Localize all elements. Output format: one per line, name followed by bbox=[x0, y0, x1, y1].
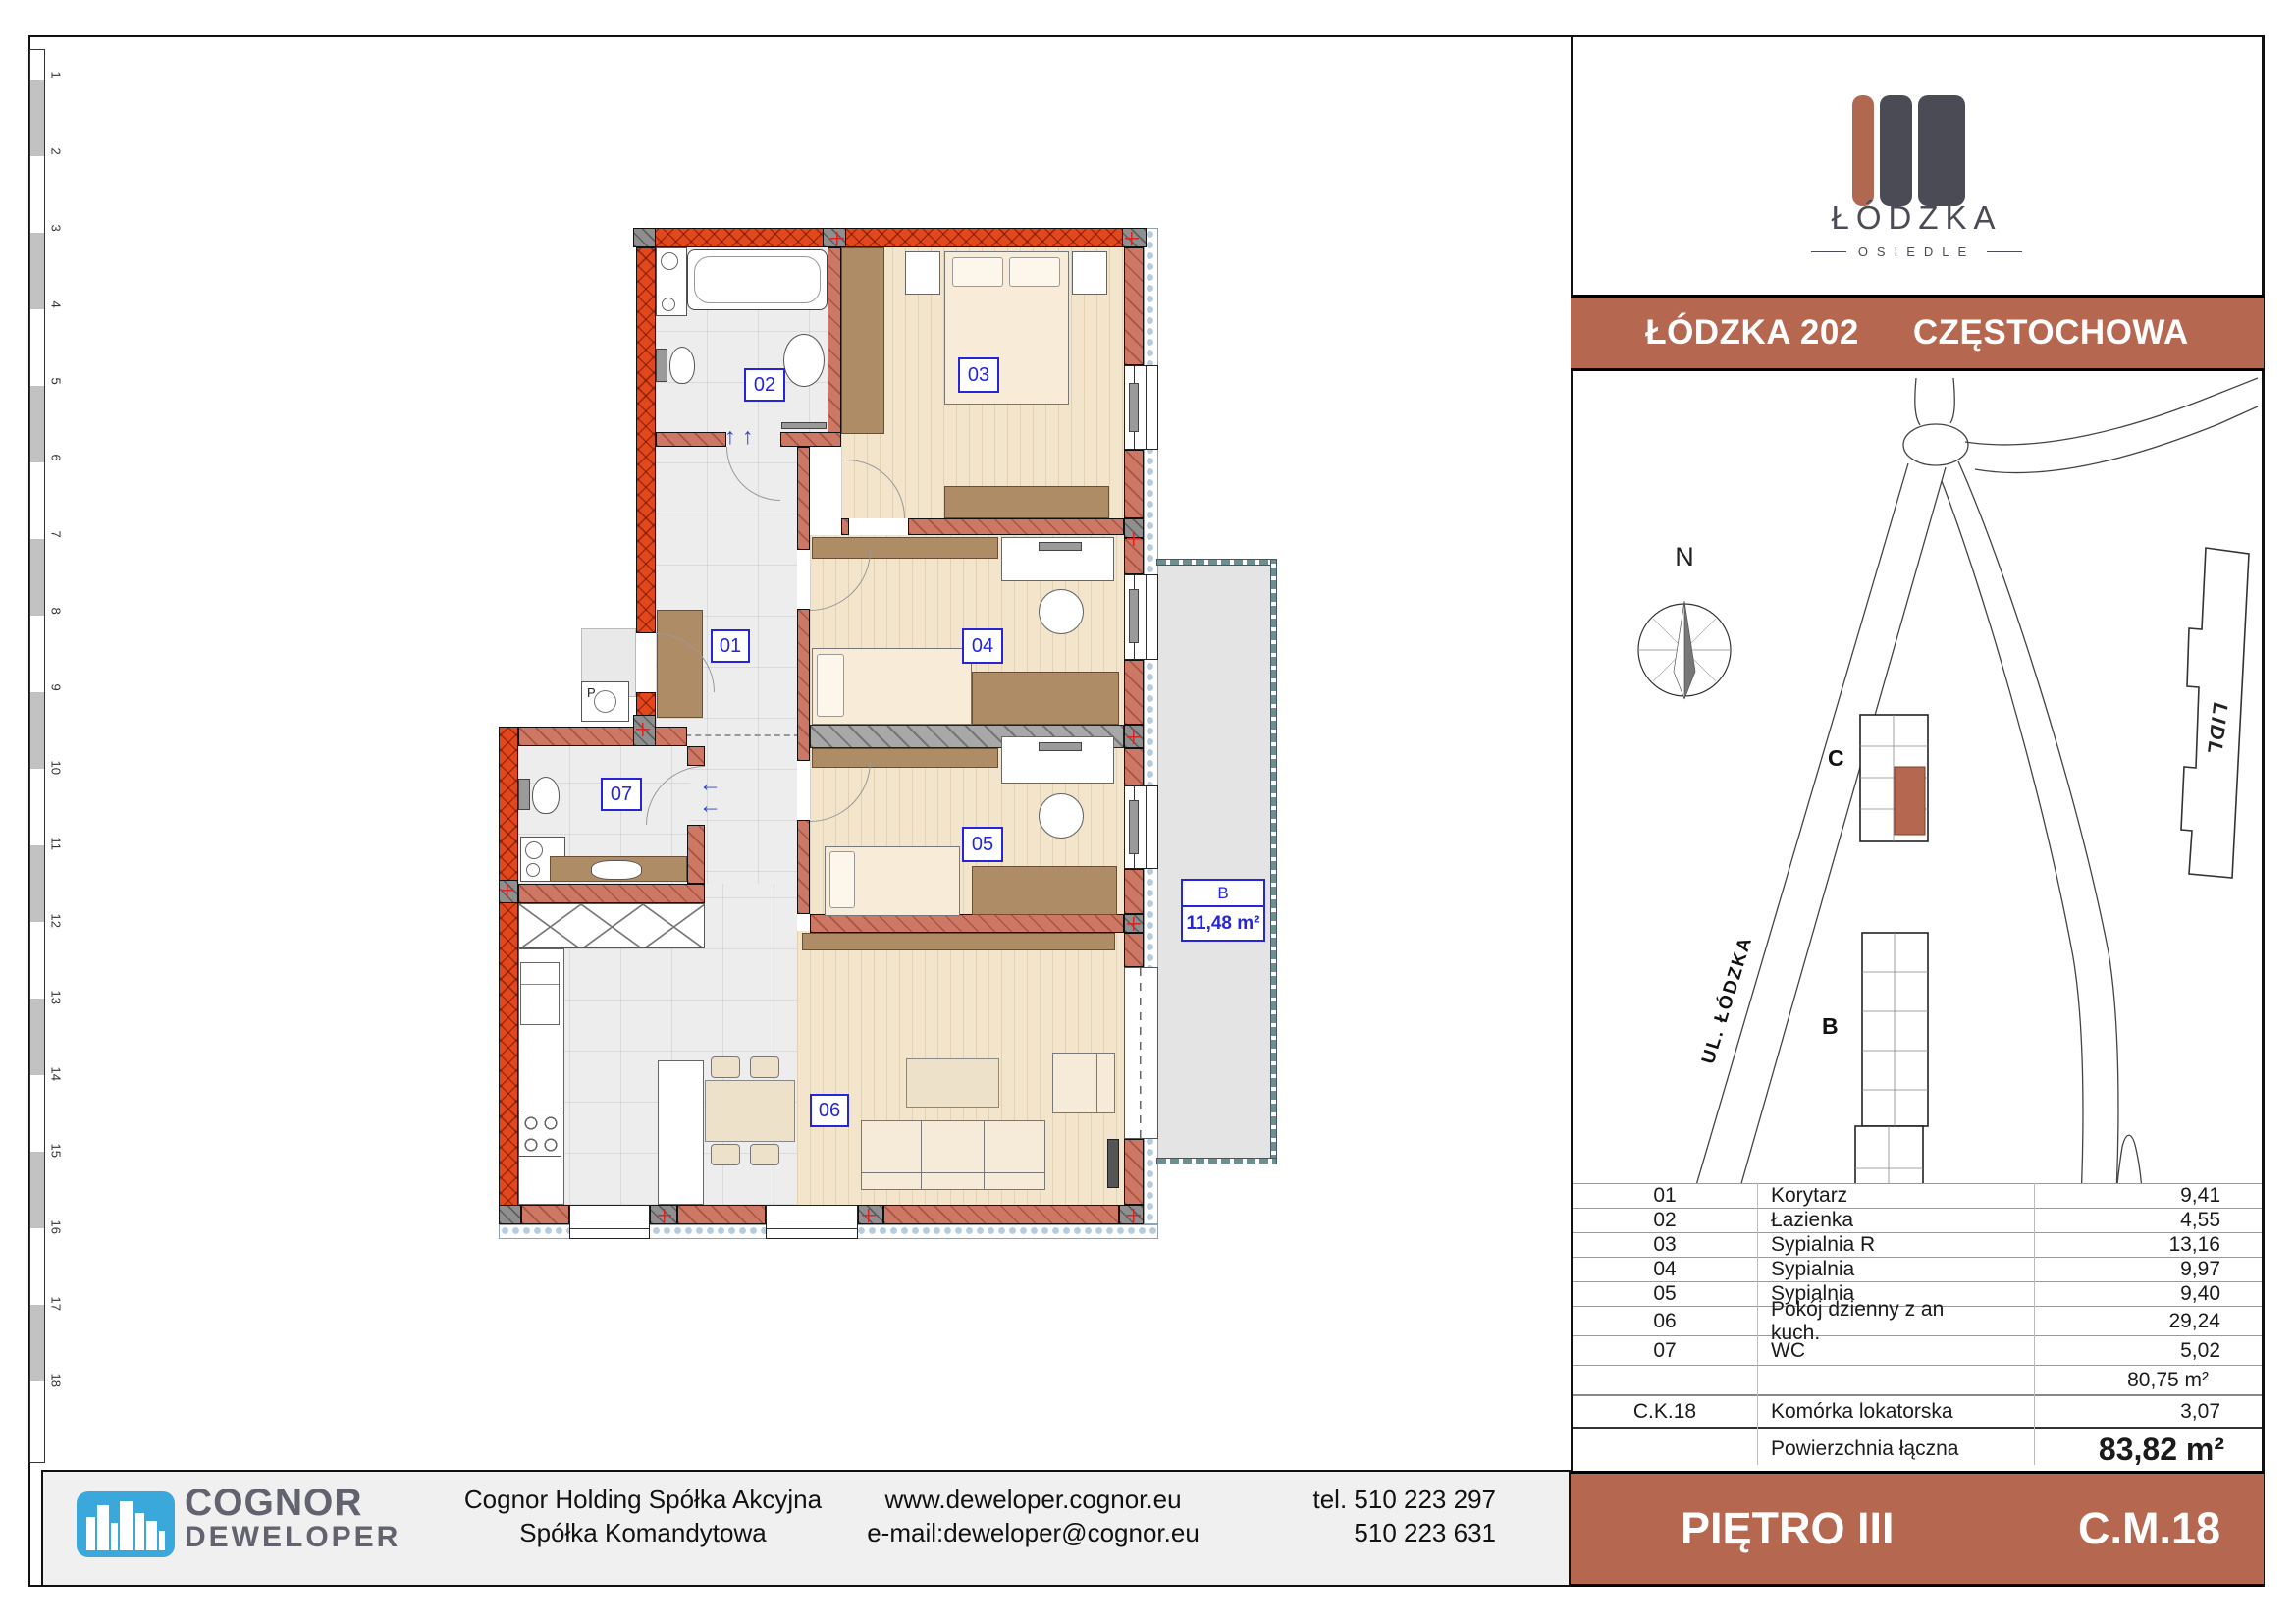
unit-code: C.M.18 bbox=[2078, 1503, 2220, 1554]
wall-left-lower bbox=[499, 727, 518, 1224]
wall-room3-bottom-a bbox=[841, 518, 849, 535]
table-cell-tval: 80,75 m² bbox=[1983, 1369, 2262, 1392]
cross-3 bbox=[1127, 731, 1141, 744]
bathtub bbox=[687, 249, 828, 310]
logo-bar2-icon bbox=[1880, 95, 1912, 206]
wall-right-d bbox=[1124, 660, 1144, 725]
washer-label: P bbox=[587, 685, 596, 700]
building-c-label: C bbox=[1828, 745, 1844, 771]
subtitle-dash-right bbox=[1987, 251, 2022, 252]
ruler-number: 4 bbox=[49, 301, 64, 315]
footer-phone-2: 510 223 631 bbox=[1294, 1518, 1496, 1548]
floor-unit-bar: PIĘTRO III C.M.18 bbox=[1571, 1471, 2264, 1587]
kitchen-peninsula bbox=[658, 1060, 704, 1205]
ruler-number: 15 bbox=[49, 1144, 64, 1158]
cross-2 bbox=[1127, 532, 1141, 546]
wall-wc-right-b bbox=[687, 825, 705, 884]
table-row: 04Sypialnia9,97 bbox=[1573, 1257, 2262, 1281]
wardrobe-bedroom3 bbox=[841, 247, 884, 434]
bath-washer bbox=[656, 247, 687, 316]
wall-top bbox=[633, 228, 1147, 247]
street-lodzka-label: UL. ŁÓDZKA bbox=[1697, 933, 1757, 1066]
balcony-label: B 11,48 m² bbox=[1181, 879, 1265, 942]
entry-arrow-left-icon: ← bbox=[699, 774, 721, 793]
table-cell-tno: 04 bbox=[1573, 1258, 1757, 1281]
company-line-1: Cognor Holding Spółka Akcyjna bbox=[412, 1485, 874, 1515]
table-cell-tno: 01 bbox=[1573, 1184, 1757, 1208]
table-cell-tno: 05 bbox=[1573, 1282, 1757, 1306]
pillow-2 bbox=[1009, 257, 1060, 287]
sofa bbox=[861, 1120, 1045, 1190]
table-row: 03Sypialnia R13,16 bbox=[1573, 1232, 2262, 1257]
pillow-3 bbox=[817, 654, 844, 717]
wall-bottom-b bbox=[677, 1205, 766, 1224]
dining-chair-3 bbox=[711, 1144, 740, 1165]
area-table: 01Korytarz9,4102Łazienka4,5503Sypialnia … bbox=[1573, 1183, 2262, 1470]
pillow-4 bbox=[829, 851, 855, 908]
table-cell-tname: WC bbox=[1757, 1339, 1995, 1363]
nightstand-left bbox=[905, 251, 940, 295]
cognor-subname: DEWELOPER bbox=[185, 1521, 400, 1554]
table-cell-tname: Powierzchnia łączna bbox=[1757, 1437, 1999, 1461]
cross-4 bbox=[1127, 917, 1141, 931]
ruler-number: 2 bbox=[49, 148, 64, 162]
wall-wc-bottom bbox=[518, 884, 705, 903]
cognor-name: COGNOR bbox=[185, 1482, 363, 1525]
footer-email[interactable]: e-mail:deweloper@cognor.eu bbox=[864, 1518, 1202, 1548]
cross-10 bbox=[1125, 232, 1139, 245]
wall-corridor-right-b bbox=[797, 609, 810, 761]
balcony-rail-right bbox=[1270, 559, 1277, 1164]
chair-bedroom4 bbox=[1039, 589, 1084, 634]
ruler-number: 17 bbox=[49, 1297, 64, 1311]
table-cell-tname: Sypialnia R bbox=[1757, 1233, 1995, 1257]
table-row: 06Pokój dzienny z an kuch.29,24 bbox=[1573, 1306, 2262, 1335]
block-top-left bbox=[633, 228, 656, 247]
ruler-number: 14 bbox=[49, 1067, 64, 1081]
ruler-scale bbox=[29, 49, 45, 1463]
ruler-number: 16 bbox=[49, 1220, 64, 1234]
highlighted-unit bbox=[1895, 767, 1925, 835]
cross-7 bbox=[658, 1209, 671, 1222]
brand-title: ŁÓDZKA bbox=[1669, 199, 2164, 237]
table-row: C.K.18Komórka lokatorska3,07 bbox=[1573, 1394, 2262, 1427]
wall-corridor-right-c bbox=[797, 820, 810, 914]
ruler-stripes bbox=[30, 80, 44, 1381]
stove bbox=[518, 1110, 561, 1157]
dresser-bedroom3 bbox=[944, 486, 1109, 518]
wall-right-h bbox=[1124, 1139, 1144, 1205]
table-cell-tno: C.K.18 bbox=[1573, 1400, 1757, 1424]
monitor-2 bbox=[1039, 742, 1082, 751]
project-header-bar: ŁÓDZKA 202 CZĘSTOCHOWA bbox=[1571, 295, 2264, 371]
radiator-1 bbox=[1129, 383, 1139, 432]
monitor-1 bbox=[1039, 542, 1082, 551]
wall-right-g bbox=[1124, 933, 1144, 967]
table-cell-tno: 06 bbox=[1573, 1310, 1757, 1333]
table-row: 02Łazienka4,55 bbox=[1573, 1208, 2262, 1232]
ruler-number: 18 bbox=[49, 1374, 64, 1387]
armchair bbox=[1052, 1053, 1115, 1113]
table-cell-tname: Łazienka bbox=[1757, 1209, 1995, 1232]
wall-living-top bbox=[810, 914, 1124, 933]
footer-phone-1: tel. 510 223 297 bbox=[1294, 1485, 1496, 1515]
table-row: 80,75 m² bbox=[1573, 1365, 2262, 1394]
wall-right-b bbox=[1124, 450, 1144, 518]
wardrobe-bedroom4 bbox=[972, 672, 1119, 725]
header-city: CZĘSTOCHOWA bbox=[1913, 313, 2189, 352]
room-label-04: 04 bbox=[962, 628, 1003, 664]
wall-bath-bottom-a bbox=[656, 432, 726, 447]
table-divider-1 bbox=[1757, 1183, 1758, 1465]
cross-5 bbox=[1127, 1209, 1141, 1222]
fridge bbox=[520, 962, 560, 1025]
ruler-number: 13 bbox=[49, 991, 64, 1004]
cross-1 bbox=[636, 723, 650, 736]
balcony-rail-bottom bbox=[1156, 1158, 1277, 1164]
dining-table bbox=[705, 1080, 795, 1142]
nightstand-right bbox=[1072, 251, 1107, 295]
ruler-number: 7 bbox=[49, 531, 64, 545]
site-map: LIDL C B A UL. ŁÓDZKA UL. OBROŃCÓW WESTE… bbox=[1571, 371, 2264, 1183]
table-cell-tname: Pokój dzienny z an kuch. bbox=[1757, 1298, 1995, 1345]
room-label-06: 06 bbox=[810, 1094, 849, 1127]
wall-wc-top bbox=[518, 727, 687, 746]
toilet-wc bbox=[532, 777, 560, 814]
logo-bar-icon bbox=[1852, 95, 1874, 206]
table-cell-tname: Komórka lokatorska bbox=[1757, 1400, 1995, 1424]
wall-right-f bbox=[1124, 869, 1144, 914]
ruler-number: 12 bbox=[49, 914, 64, 928]
footer-website[interactable]: www.deweloper.cognor.eu bbox=[864, 1485, 1202, 1515]
wardrobe-bedroom5 bbox=[972, 866, 1117, 915]
radiator-2 bbox=[1129, 589, 1139, 643]
chair-bedroom5 bbox=[1039, 793, 1084, 839]
wall-bottom-c bbox=[883, 1205, 1119, 1224]
wall-bottom-a bbox=[521, 1205, 569, 1224]
kitchen-upper-cabinets bbox=[518, 903, 705, 948]
dining-chair-1 bbox=[711, 1056, 740, 1078]
ruler-number: 5 bbox=[49, 378, 64, 392]
area-table-rows: 01Korytarz9,4102Łazienka4,5503Sypialnia … bbox=[1573, 1183, 2262, 1470]
room-label-05: 05 bbox=[962, 827, 1003, 862]
dining-chair-4 bbox=[750, 1144, 779, 1165]
balcony-floor bbox=[1156, 565, 1270, 1164]
ruler-number: 9 bbox=[49, 684, 64, 698]
cross-9 bbox=[830, 232, 844, 245]
balcony-area: 11,48 m² bbox=[1183, 907, 1263, 940]
wall-bath-right bbox=[828, 247, 841, 434]
ruler-number: 10 bbox=[49, 761, 64, 775]
tv-sideboard bbox=[802, 933, 1115, 950]
table-row: Powierzchnia łączna83,82 m² bbox=[1573, 1427, 2262, 1470]
tv bbox=[1107, 1139, 1119, 1188]
compass-north-label: N bbox=[1675, 542, 1694, 571]
toilet-cistern bbox=[656, 349, 667, 382]
coffee-table bbox=[906, 1058, 999, 1108]
table-cell-tno: 02 bbox=[1573, 1209, 1757, 1232]
brand-subtitle: OSIEDLE bbox=[1858, 244, 1975, 259]
header-project: ŁÓDZKA 202 bbox=[1645, 313, 1859, 352]
cross-6 bbox=[501, 884, 514, 897]
wall-corridor-right-a bbox=[797, 447, 810, 550]
wall-wc-right-a bbox=[687, 746, 705, 766]
table-cell-tname: Korytarz bbox=[1757, 1184, 1995, 1208]
table-cell-tname: Sypialnia bbox=[1757, 1258, 1995, 1281]
cross-8 bbox=[862, 1209, 876, 1222]
towel-rail bbox=[781, 422, 827, 429]
wc-sink bbox=[591, 860, 642, 880]
bathroom-sink bbox=[783, 334, 825, 387]
toilet-bathroom bbox=[669, 347, 695, 384]
radiator-3 bbox=[1129, 800, 1139, 854]
ruler-number: 3 bbox=[49, 225, 64, 239]
brand-subtitle-row: OSIEDLE bbox=[1669, 244, 2164, 259]
compass-icon: N bbox=[1638, 542, 1731, 699]
building-b-label: B bbox=[1822, 1013, 1839, 1039]
cognor-logo-icon bbox=[77, 1491, 175, 1557]
balcony-code: B bbox=[1183, 881, 1263, 907]
balcony-door-living bbox=[1124, 967, 1158, 1139]
room-label-02: 02 bbox=[744, 368, 785, 402]
table-cell-tval: 83,82 m² bbox=[1999, 1432, 2262, 1468]
floor-label: PIĘTRO III bbox=[1681, 1503, 1895, 1554]
wall-bath-bottom-b bbox=[780, 432, 841, 447]
company-line-2: Spółka Komandytowa bbox=[412, 1518, 874, 1548]
wall-left-upper bbox=[636, 247, 656, 633]
room-label-01: 01 bbox=[711, 629, 750, 663]
skyline-icon bbox=[77, 1491, 175, 1557]
wall-room3-bottom-b bbox=[908, 518, 1124, 535]
table-cell-tno: 03 bbox=[1573, 1233, 1757, 1257]
entry-arrows-up-icon: ↑ ↑ bbox=[724, 426, 753, 446]
room-label-07: 07 bbox=[601, 778, 642, 811]
window-living bbox=[766, 1205, 858, 1239]
balcony-rail-top bbox=[1156, 559, 1277, 566]
table-divider-2 bbox=[2034, 1183, 2035, 1465]
block-bottom-left bbox=[499, 1205, 521, 1224]
wc-cistern bbox=[518, 779, 530, 810]
entry-arrow-left2-icon: ← bbox=[699, 795, 721, 815]
ruler-number: 8 bbox=[49, 608, 64, 622]
logo-bar3-icon bbox=[1918, 95, 1965, 206]
ruler-number: 1 bbox=[49, 72, 64, 85]
table-cell-tno: 07 bbox=[1573, 1339, 1757, 1363]
pillow-1 bbox=[952, 257, 1003, 287]
table-row: 01Korytarz9,41 bbox=[1573, 1183, 2262, 1208]
wall-right-e bbox=[1124, 748, 1144, 785]
ruler-number: 11 bbox=[49, 838, 64, 851]
room-label-03: 03 bbox=[958, 357, 999, 393]
ruler-number: 6 bbox=[49, 455, 64, 468]
subtitle-dash-left bbox=[1811, 251, 1846, 252]
dining-chair-2 bbox=[750, 1056, 779, 1078]
table-row: 07WC5,02 bbox=[1573, 1335, 2262, 1365]
wall-right-a bbox=[1124, 247, 1144, 365]
window-kitchen bbox=[569, 1205, 650, 1239]
